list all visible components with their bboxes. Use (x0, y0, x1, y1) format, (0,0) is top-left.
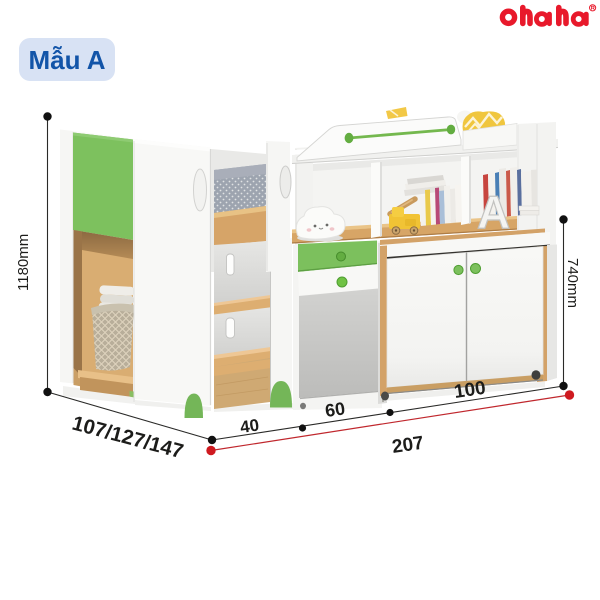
svg-text:207: 207 (391, 433, 425, 458)
svg-text:A: A (477, 186, 510, 238)
svg-text:60: 60 (324, 398, 347, 421)
svg-text:740mm: 740mm (564, 258, 581, 308)
svg-text:1180mm: 1180mm (15, 234, 32, 291)
svg-text:40: 40 (239, 416, 260, 437)
svg-text:100: 100 (453, 378, 487, 403)
svg-text:Mẫu A: Mẫu A (28, 45, 105, 75)
